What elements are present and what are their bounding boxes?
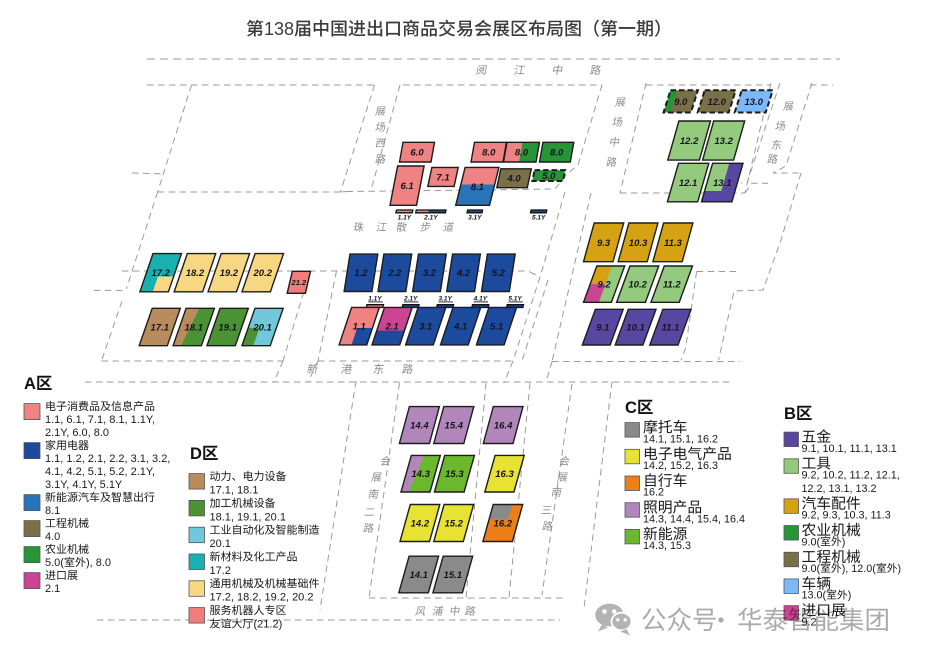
svg-text:4.1: 4.1 — [453, 322, 467, 333]
svg-text:D: D — [190, 445, 202, 463]
svg-text:9.2, 9.3, 10.3, 11.3: 9.2, 9.3, 10.3, 11.3 — [802, 510, 891, 522]
svg-text:9.2: 9.2 — [597, 280, 611, 291]
svg-text:14.1: 14.1 — [409, 570, 428, 581]
svg-text:11.3: 11.3 — [664, 238, 683, 249]
svg-text:17.1: 17.1 — [151, 322, 170, 333]
svg-text:), 12.0(: ), 12.0( — [842, 563, 877, 575]
svg-text:9.3: 9.3 — [597, 238, 611, 249]
svg-text:14.1, 15.1, 16.2: 14.1, 15.1, 16.2 — [643, 433, 718, 445]
svg-text:17.2: 17.2 — [210, 565, 231, 577]
svg-text:16.2: 16.2 — [643, 487, 664, 499]
svg-text:4.0: 4.0 — [506, 174, 521, 185]
svg-text:2.2: 2.2 — [387, 268, 402, 279]
svg-text:5.0: 5.0 — [542, 171, 556, 182]
svg-text:15.2: 15.2 — [444, 518, 463, 529]
svg-text:14.2, 15.2, 16.3: 14.2, 15.2, 16.3 — [643, 460, 718, 472]
svg-text:10.3: 10.3 — [629, 238, 648, 249]
svg-text:11.2: 11.2 — [663, 280, 682, 291]
svg-text:14.3, 14.4, 15.4, 16.4: 14.3, 14.4, 15.4, 16.4 — [643, 513, 745, 525]
svg-text:2.1Y, 6.0, 8.0: 2.1Y, 6.0, 8.0 — [45, 427, 109, 439]
svg-text:16.2: 16.2 — [494, 518, 513, 529]
svg-text:3.1: 3.1 — [419, 322, 432, 333]
svg-text:17.2, 18.2, 19.2, 20.2: 17.2, 18.2, 19.2, 20.2 — [210, 592, 314, 604]
svg-text:2.1: 2.1 — [45, 583, 60, 595]
svg-text:6.1: 6.1 — [400, 181, 413, 192]
svg-text:8.0: 8.0 — [550, 148, 564, 159]
svg-text:A: A — [24, 375, 36, 393]
svg-text:17.1, 18.1: 17.1, 18.1 — [210, 485, 259, 497]
svg-text:3.1Y: 3.1Y — [468, 215, 482, 222]
svg-text:1.2: 1.2 — [354, 268, 368, 279]
svg-text:2.1: 2.1 — [384, 322, 398, 333]
svg-text:5.1: 5.1 — [490, 322, 503, 333]
svg-text:12.0: 12.0 — [707, 97, 726, 108]
svg-text:14.3: 14.3 — [411, 469, 430, 480]
svg-text:5.2: 5.2 — [492, 268, 506, 279]
svg-text:9.1: 9.1 — [596, 323, 609, 334]
svg-text:13.0: 13.0 — [744, 97, 763, 108]
svg-text:1.1, 1.2, 2.1, 2.2, 3.1, 3.2,: 1.1, 1.2, 2.1, 2.2, 3.1, 3.2, — [45, 453, 170, 465]
svg-text:7.1: 7.1 — [436, 172, 449, 183]
svg-text:14.3, 15.3: 14.3, 15.3 — [643, 540, 691, 552]
svg-text:1.1, 6.1, 7.1, 8.1, 1.1Y,: 1.1, 6.1, 7.1, 8.1, 1.1Y, — [45, 414, 155, 426]
svg-text:20.1: 20.1 — [252, 322, 272, 333]
svg-text:1.1Y: 1.1Y — [398, 215, 412, 222]
svg-text:8.1: 8.1 — [45, 505, 60, 517]
svg-text:17.2: 17.2 — [151, 268, 170, 279]
svg-text:20.1: 20.1 — [210, 538, 231, 550]
svg-text:13.2: 13.2 — [714, 136, 733, 147]
svg-text:9.2, 10.2, 11.2, 12.1,: 9.2, 10.2, 11.2, 12.1, — [802, 470, 900, 482]
svg-text:20.2: 20.2 — [253, 268, 273, 279]
svg-text:3.1Y, 4.1Y, 5.1Y: 3.1Y, 4.1Y, 5.1Y — [45, 479, 123, 491]
svg-text:15.4: 15.4 — [445, 420, 464, 431]
svg-text:1.1: 1.1 — [353, 322, 366, 333]
svg-text:19.2: 19.2 — [220, 268, 239, 279]
svg-text:9.1, 10.1, 11.1, 13.1: 9.1, 10.1, 11.1, 13.1 — [802, 443, 897, 455]
svg-text:2.1Y: 2.1Y — [423, 215, 438, 222]
svg-text:C: C — [625, 399, 637, 417]
svg-text:11.1: 11.1 — [662, 323, 680, 334]
svg-text:5.1Y: 5.1Y — [532, 215, 546, 222]
svg-text:4.1, 4.2, 5.1, 5.2, 2.1Y,: 4.1, 4.2, 5.1, 5.2, 2.1Y, — [45, 466, 155, 478]
svg-text:B: B — [784, 405, 796, 423]
svg-text:14.2: 14.2 — [411, 518, 430, 529]
svg-text:8.1: 8.1 — [471, 182, 484, 193]
svg-text:12.1: 12.1 — [679, 178, 698, 189]
svg-text:8.0: 8.0 — [482, 148, 496, 159]
svg-text:19.1: 19.1 — [218, 322, 237, 333]
svg-text:12.2: 12.2 — [680, 136, 699, 147]
svg-text:): ) — [848, 590, 852, 602]
svg-text:3.2: 3.2 — [423, 268, 437, 279]
svg-text:12.2, 13.1, 13.2: 12.2, 13.1, 13.2 — [802, 483, 877, 495]
svg-text:8.0: 8.0 — [515, 148, 529, 159]
svg-text:5.0(: 5.0( — [45, 557, 64, 569]
svg-text:13.1: 13.1 — [713, 178, 732, 189]
svg-text:10.1: 10.1 — [626, 323, 645, 334]
svg-text:9.0(: 9.0( — [802, 536, 821, 548]
svg-text:), 8.0: ), 8.0 — [86, 557, 111, 569]
svg-text:6.0: 6.0 — [410, 148, 424, 159]
svg-text:15.3: 15.3 — [445, 469, 464, 480]
svg-text:16.3: 16.3 — [495, 469, 514, 480]
svg-text:4.2: 4.2 — [456, 268, 471, 279]
svg-text:9.0: 9.0 — [674, 97, 688, 108]
svg-text:4.0: 4.0 — [45, 531, 60, 543]
svg-text:14.4: 14.4 — [410, 420, 429, 431]
svg-text:138: 138 — [264, 19, 294, 39]
svg-text:(21.2): (21.2) — [254, 619, 283, 631]
svg-text:10.2: 10.2 — [628, 280, 647, 291]
svg-text:): ) — [842, 536, 846, 548]
svg-text:9.0(: 9.0( — [802, 563, 821, 575]
svg-text:15.1: 15.1 — [444, 570, 463, 581]
svg-text:18.1, 19.1, 20.1: 18.1, 19.1, 20.1 — [210, 511, 286, 523]
svg-text:18.1: 18.1 — [185, 322, 204, 333]
svg-text:21.2: 21.2 — [291, 278, 307, 287]
svg-text:13.0(: 13.0( — [802, 590, 827, 602]
svg-text:): ) — [898, 563, 902, 575]
svg-text:16.4: 16.4 — [494, 420, 513, 431]
svg-text:18.2: 18.2 — [186, 268, 205, 279]
